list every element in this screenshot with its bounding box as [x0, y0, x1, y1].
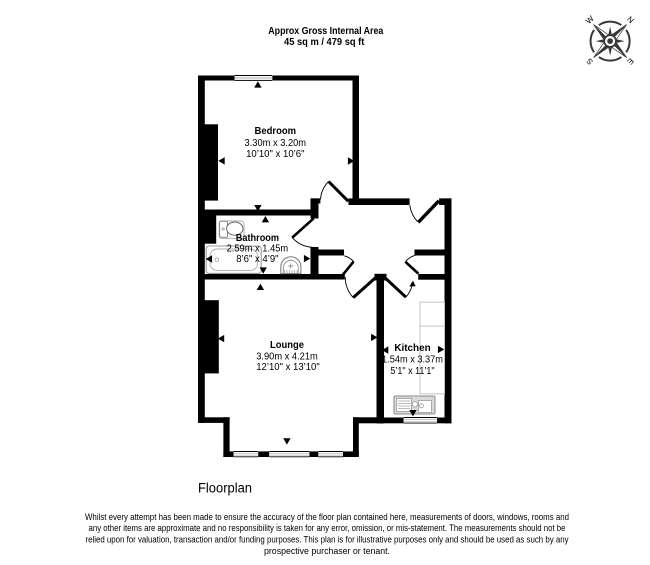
svg-text:any other items are approximat: any other items are approximate and no r… [89, 523, 566, 533]
svg-text:3.90m x 4.21m: 3.90m x 4.21m [256, 352, 318, 363]
svg-text:5’1" x 11’1": 5’1" x 11’1" [390, 366, 435, 377]
svg-text:45 sq m / 479 sq ft: 45 sq m / 479 sq ft [284, 37, 365, 48]
svg-text:10’10" x 10’6": 10’10" x 10’6" [246, 149, 305, 160]
svg-text:Bathroom: Bathroom [236, 233, 279, 244]
svg-text:relied upon for valuation, tra: relied upon for valuation, transaction a… [86, 535, 569, 545]
svg-text:prospective purchaser or tenan: prospective purchaser or tenant. [264, 546, 390, 556]
svg-text:8’6" x 4’9": 8’6" x 4’9" [236, 254, 279, 265]
svg-text:Whilst every attempt has been: Whilst every attempt has been made to en… [85, 512, 569, 522]
svg-text:Floorplan: Floorplan [198, 481, 252, 496]
svg-text:3.30m x 3.20m: 3.30m x 3.20m [245, 138, 307, 149]
svg-text:1.54m x 3.37m: 1.54m x 3.37m [382, 354, 443, 365]
svg-text:12’10" x 13’10": 12’10" x 13’10" [256, 362, 320, 373]
svg-text:Bedroom: Bedroom [255, 126, 297, 137]
svg-text:2.59m x 1.45m: 2.59m x 1.45m [227, 243, 289, 254]
svg-text:Approx Gross Internal Area: Approx Gross Internal Area [268, 26, 383, 37]
svg-text:Kitchen: Kitchen [394, 343, 430, 354]
svg-text:Lounge: Lounge [270, 340, 304, 351]
